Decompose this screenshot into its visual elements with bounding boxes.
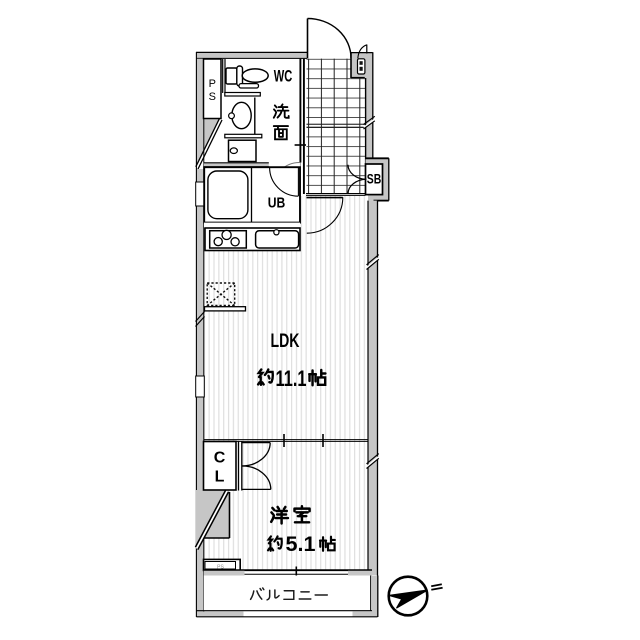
- svg-text:S: S: [209, 91, 216, 103]
- svg-text:P: P: [209, 78, 216, 90]
- svg-text:LDK: LDK: [271, 331, 300, 352]
- svg-text:WC: WC: [274, 67, 293, 86]
- svg-text:C: C: [214, 450, 226, 467]
- svg-text:SB: SB: [367, 172, 382, 187]
- svg-text:L: L: [215, 469, 225, 486]
- svg-text:UB: UB: [268, 196, 286, 212]
- svg-text:11.1: 11.1: [276, 366, 307, 391]
- svg-text:5.1: 5.1: [286, 533, 316, 556]
